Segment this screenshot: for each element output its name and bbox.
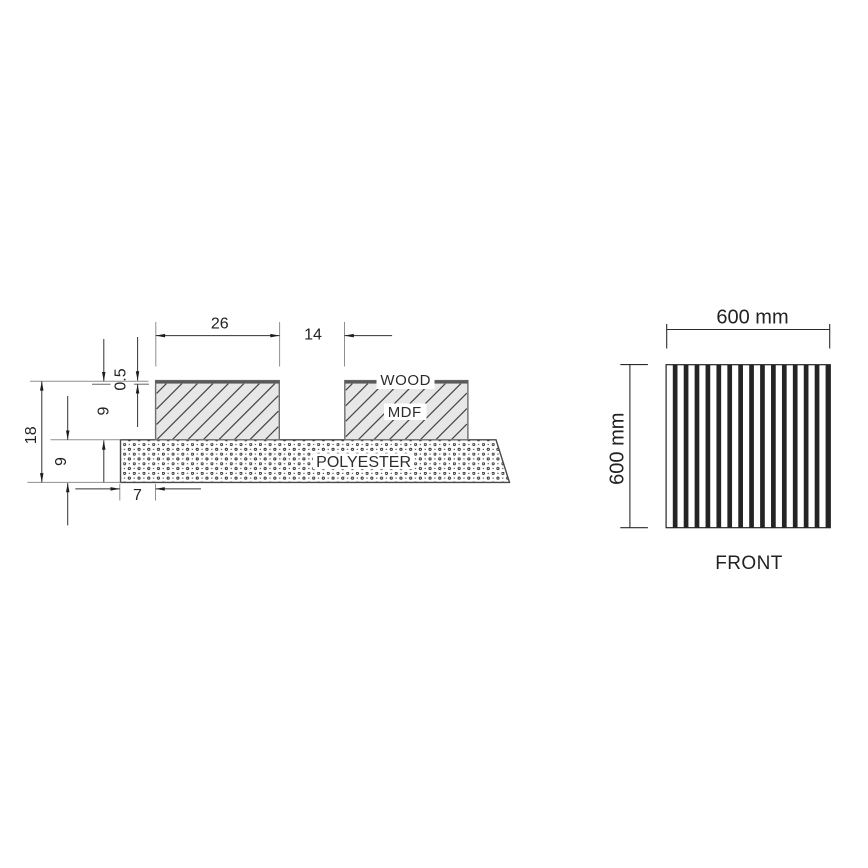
svg-text:0.5: 0.5	[113, 368, 130, 390]
svg-text:26: 26	[211, 315, 229, 332]
svg-text:18: 18	[23, 426, 40, 444]
svg-text:FRONT: FRONT	[715, 553, 782, 574]
svg-text:600 mm: 600 mm	[607, 413, 629, 485]
svg-text:7: 7	[133, 487, 142, 504]
svg-text:9: 9	[53, 457, 70, 466]
svg-text:600 mm: 600 mm	[716, 306, 788, 328]
svg-text:9: 9	[96, 406, 113, 415]
svg-text:14: 14	[304, 327, 322, 344]
svg-text:POLYESTER: POLYESTER	[316, 454, 411, 471]
svg-text:MDF: MDF	[388, 404, 422, 421]
svg-text:WOOD: WOOD	[380, 372, 431, 389]
